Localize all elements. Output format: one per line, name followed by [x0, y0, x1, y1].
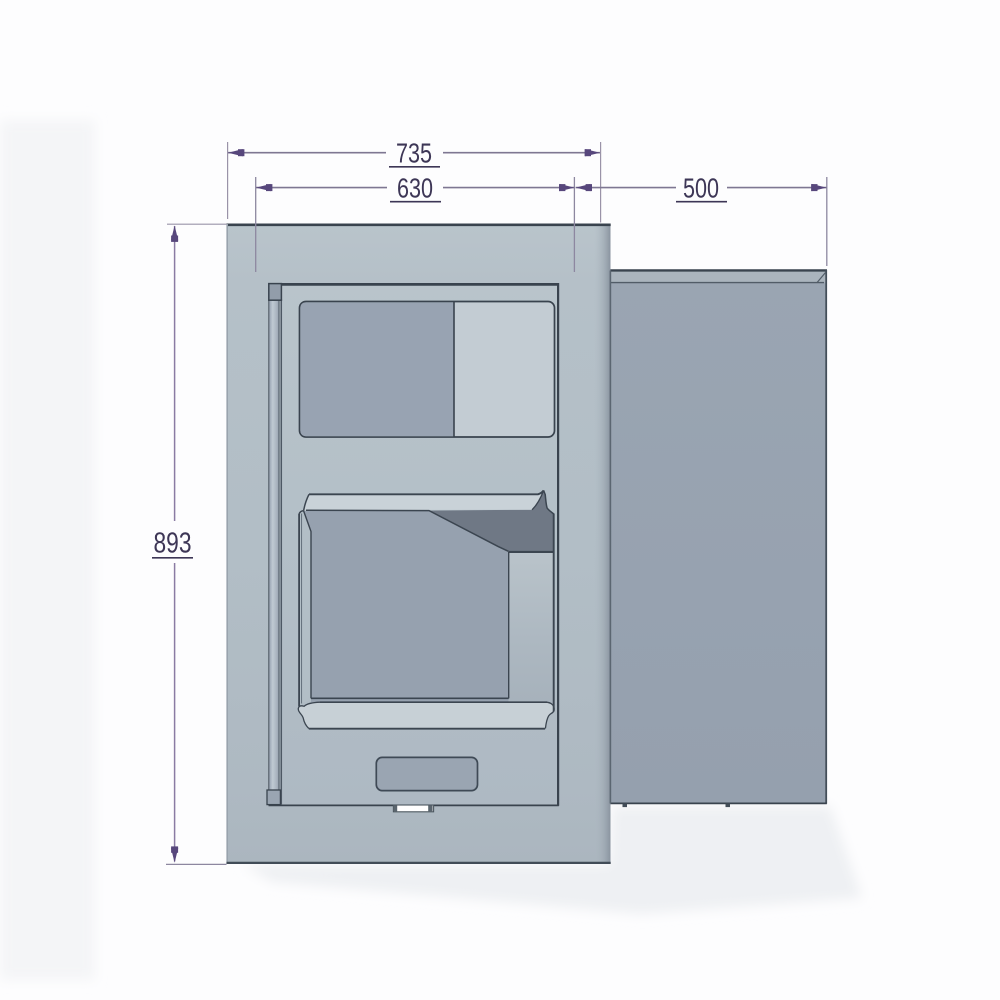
svg-text:893: 893	[154, 528, 192, 560]
svg-text:500: 500	[683, 172, 719, 203]
svg-text:630: 630	[397, 172, 433, 203]
svg-text:735: 735	[396, 138, 432, 169]
